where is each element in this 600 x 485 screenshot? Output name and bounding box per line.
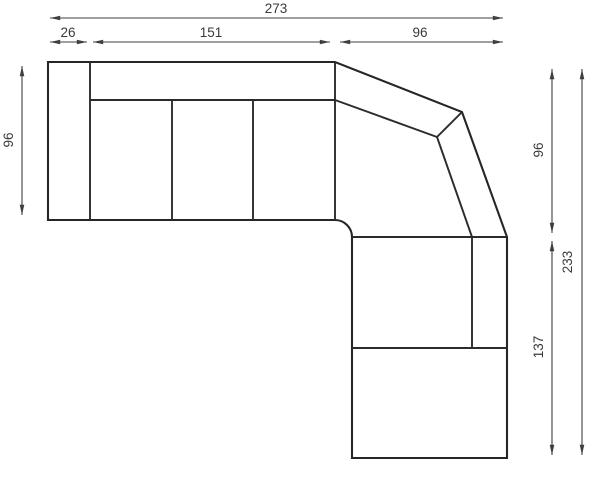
dim-right-total-length: 233 [560, 69, 582, 455]
dim-corner-width: 96 [340, 25, 503, 42]
sofa-plan [48, 62, 507, 458]
dim-right-upper-depth-label: 96 [531, 142, 546, 157]
drawing-canvas: 273 26 151 96 96 96 137 [0, 0, 600, 485]
dim-right-lower-length-label: 137 [531, 336, 546, 359]
corner-backrest-steep-line [437, 137, 472, 237]
sofa-outline [48, 62, 507, 458]
dim-seats-width: 151 [93, 25, 330, 42]
dim-armrest-width: 26 [50, 25, 87, 42]
dim-left-depth-label: 96 [1, 132, 16, 147]
dim-right-lower-length: 137 [531, 241, 552, 455]
dim-total-width-label: 273 [265, 1, 288, 16]
dim-right-upper-depth: 96 [531, 69, 552, 233]
dim-total-width: 273 [50, 1, 503, 18]
dim-left-depth: 96 [1, 66, 22, 215]
dim-seats-width-label: 151 [200, 25, 223, 40]
dim-armrest-width-label: 26 [60, 25, 75, 40]
sofa-plan-svg: 273 26 151 96 96 96 137 [0, 0, 600, 485]
corner-miter-line [437, 112, 462, 137]
dim-corner-width-label: 96 [412, 25, 427, 40]
corner-backrest-inner-diagonal [335, 100, 437, 137]
dim-right-total-length-label: 233 [560, 251, 575, 274]
